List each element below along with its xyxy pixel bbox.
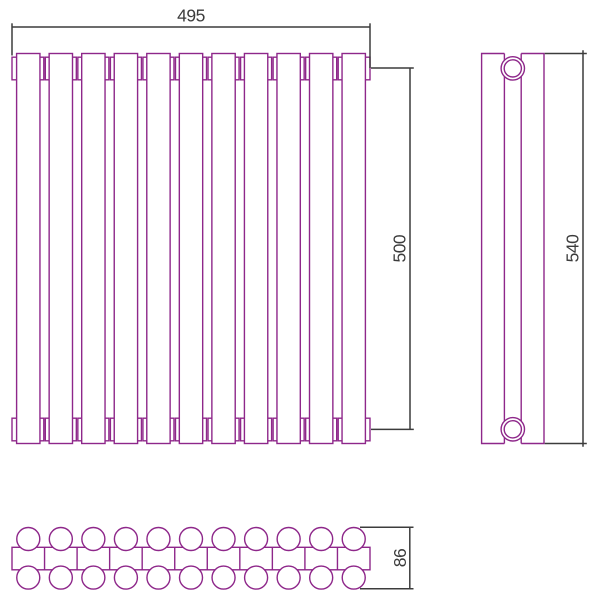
svg-text:540: 540 xyxy=(562,234,582,262)
svg-text:495: 495 xyxy=(177,6,205,26)
svg-text:500: 500 xyxy=(389,234,409,262)
svg-text:86: 86 xyxy=(390,549,410,567)
